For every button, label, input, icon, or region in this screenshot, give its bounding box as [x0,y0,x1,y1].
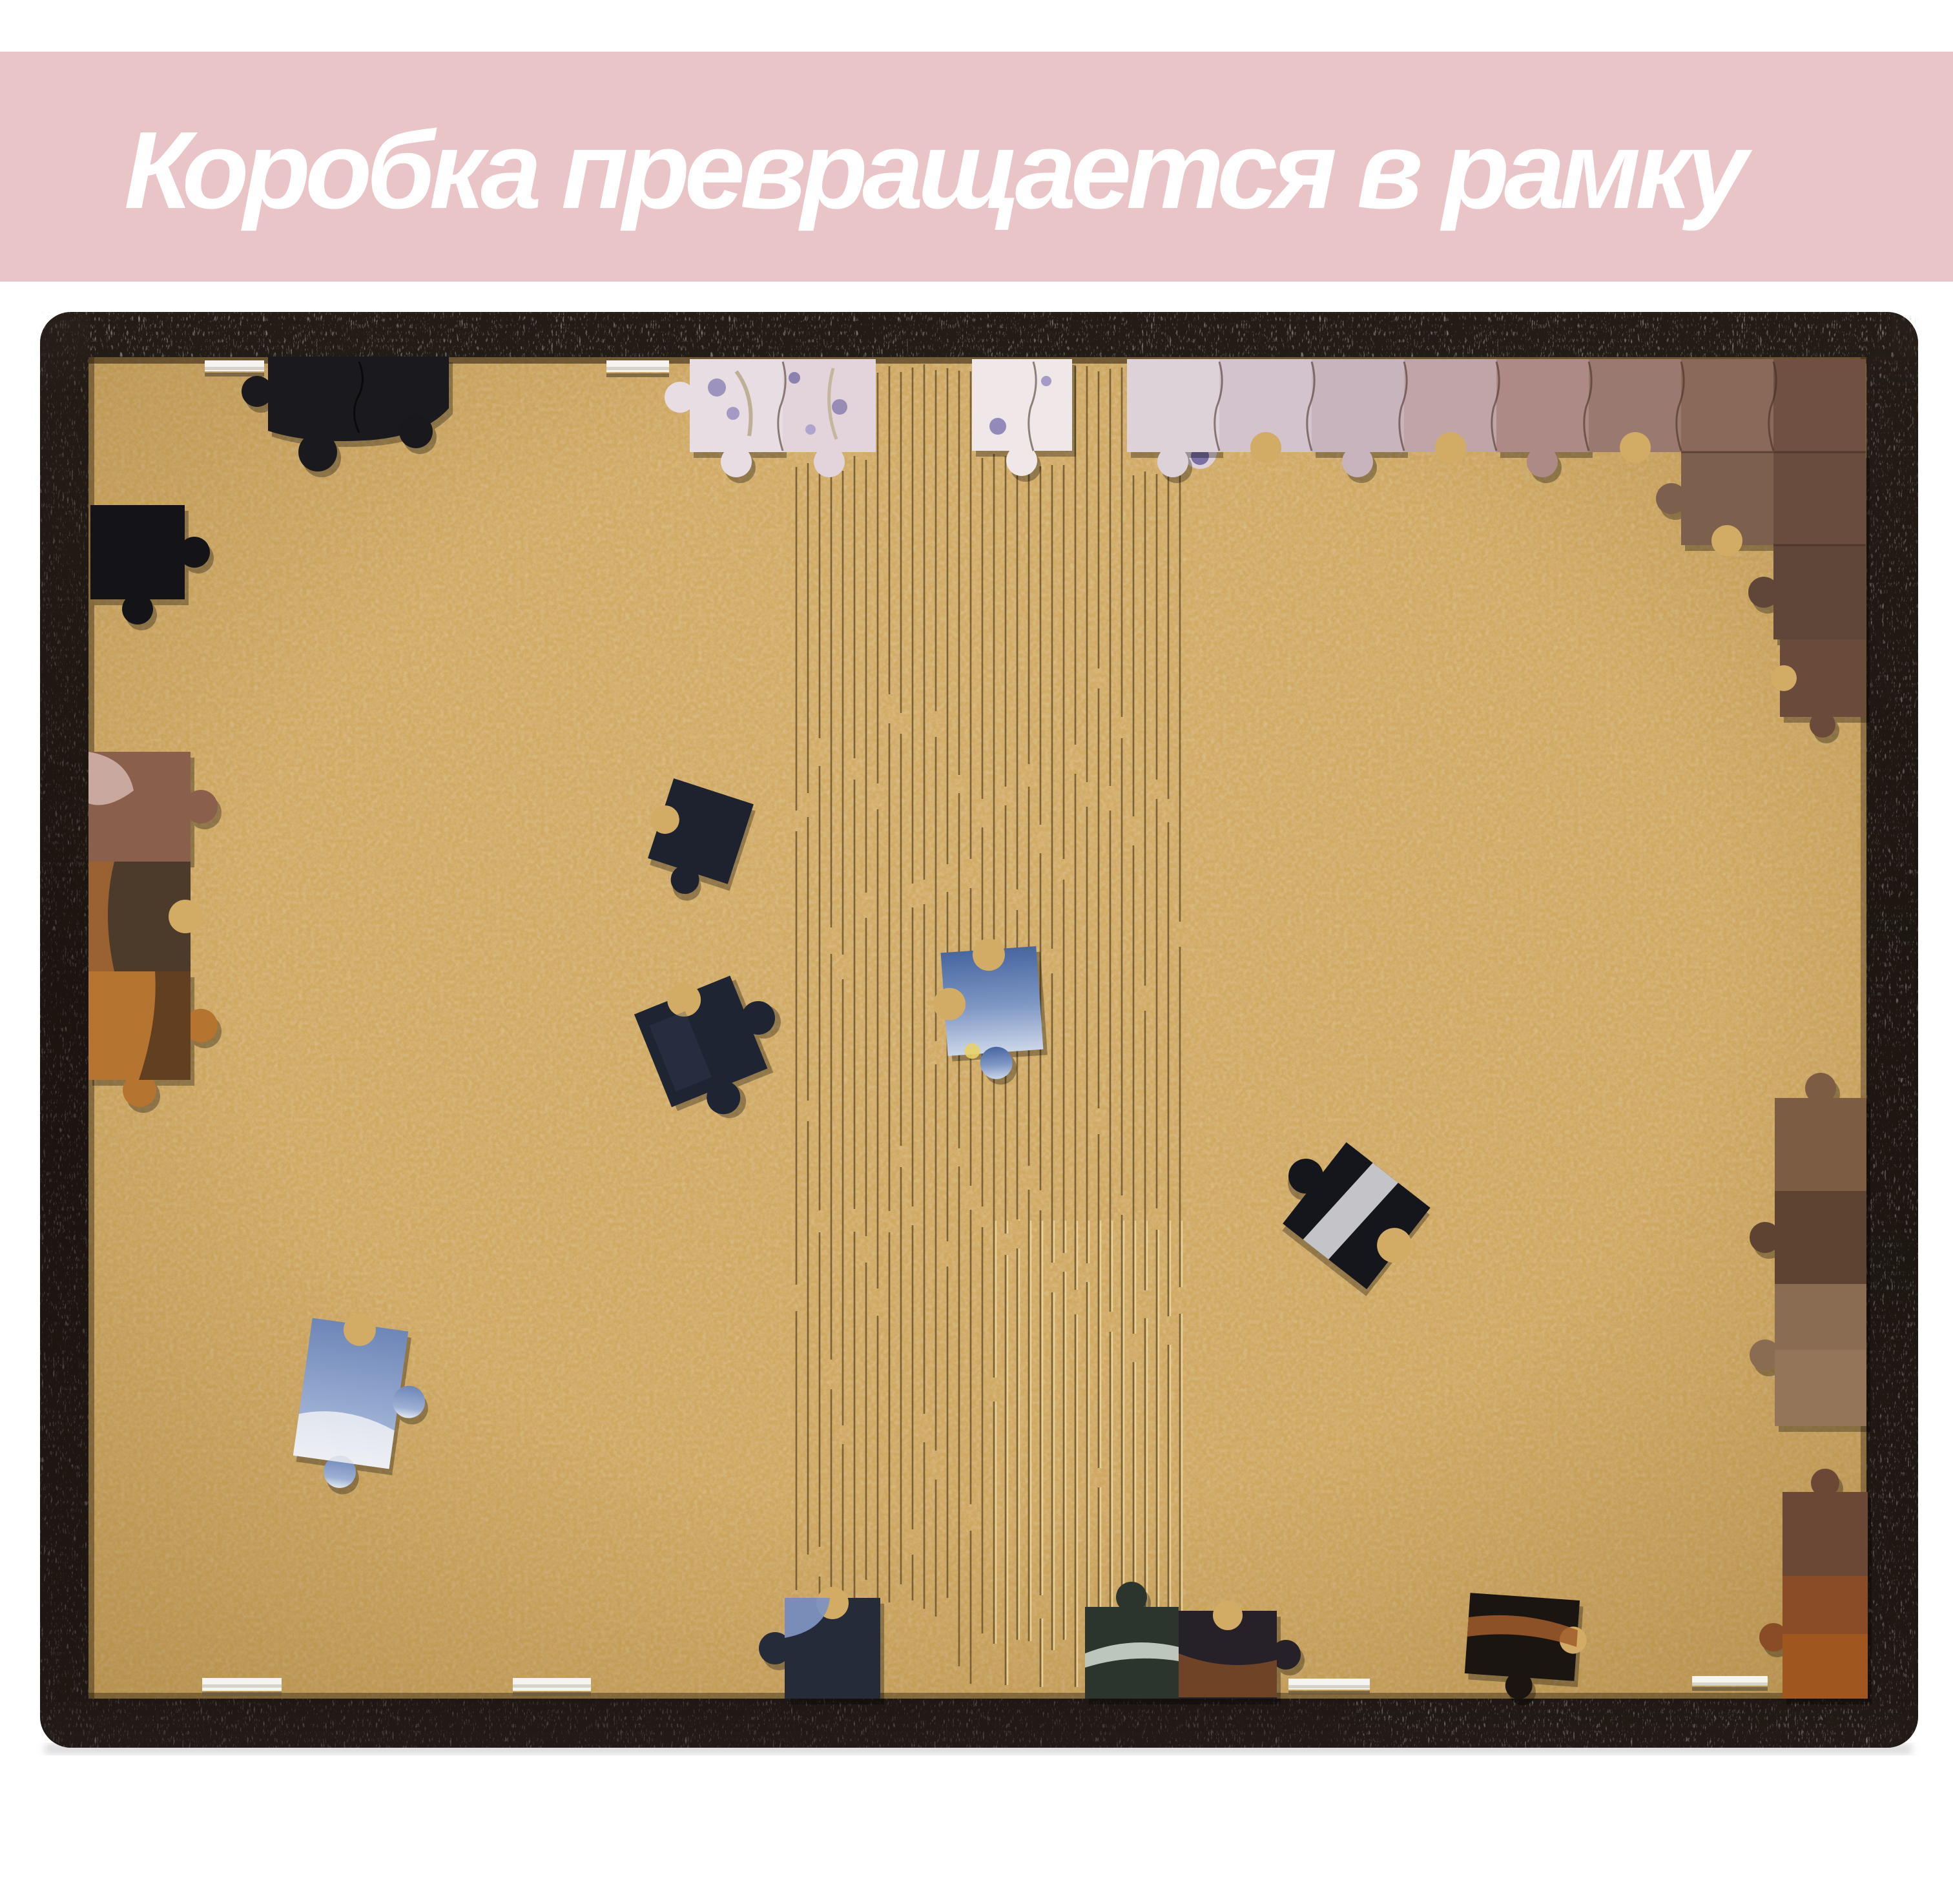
svg-text:Коробка превращается в рамку: Коробка превращается в рамку [124,109,1753,232]
